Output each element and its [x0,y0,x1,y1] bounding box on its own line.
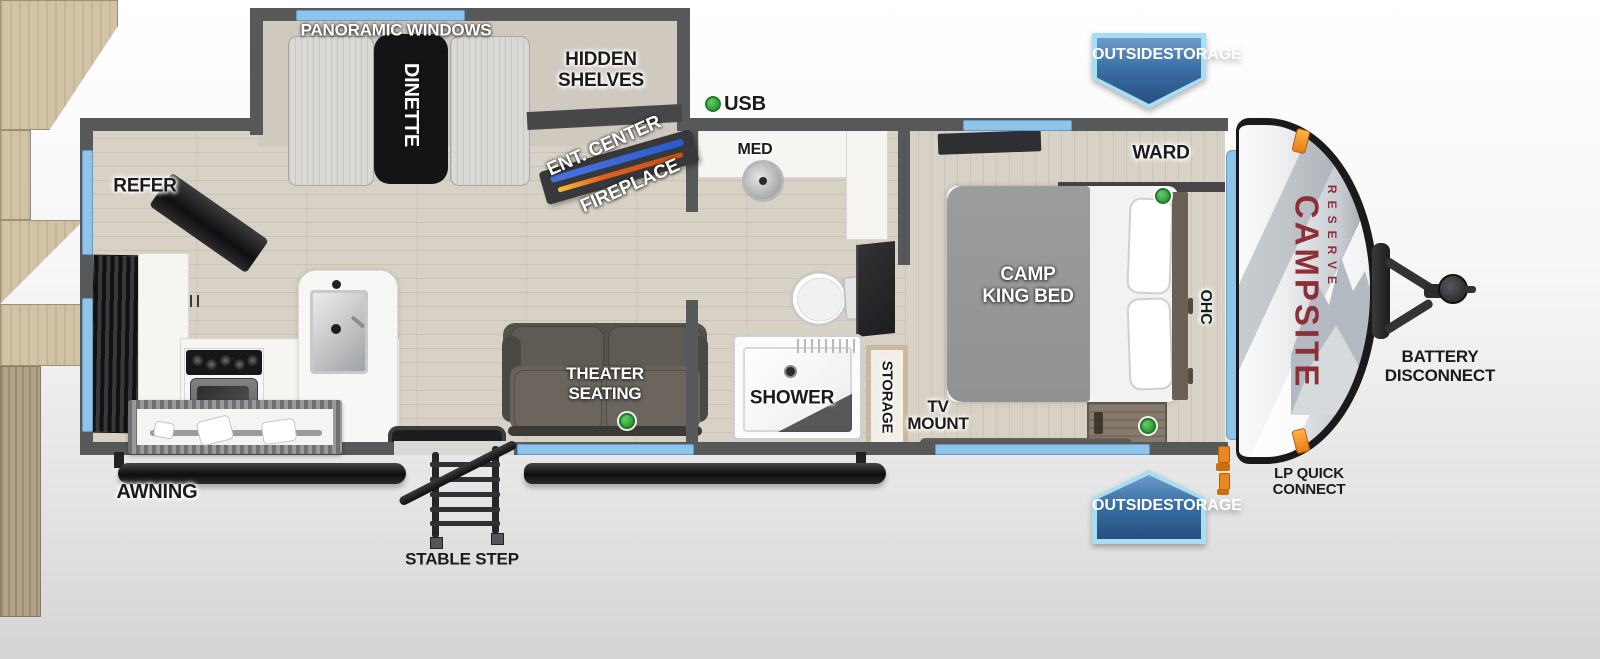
bath-bedroom-wall [898,125,910,265]
lp-hose [1216,463,1230,471]
label-panoramic-windows: PANORAMIC WINDOWS [301,22,492,39]
label-usb: USB [724,94,766,114]
burner [247,355,258,366]
burner [192,355,203,366]
nightstand-handle [1094,412,1103,434]
badge-line: STORAGE [1163,497,1242,514]
label-med: MED [738,142,773,158]
window-bottom-bedroom [935,444,1150,455]
outside-storage-badge-top: OUTSIDESTORAGE [1092,33,1206,109]
window-panoramic [296,10,465,21]
refrigerator-cabinet [0,0,118,130]
bath-vanity-return [846,126,888,240]
medicine-cabinet-wedge [0,220,84,304]
window-rear-upper [82,150,93,255]
swivel-tv-panel [856,241,895,337]
toilet [788,265,866,332]
pantry-cabinet [0,130,31,220]
burner [206,359,217,370]
label-camp-king-bed: CAMPKING BED [982,264,1073,308]
burner [234,359,245,370]
window-rear-lower [82,298,93,432]
faucet-base [332,280,341,289]
badge-line: OUTSIDE [1092,497,1163,514]
badge-line: OUTSIDE [1092,46,1163,63]
bath-sink-drain [759,177,767,185]
label-refer: REFER [113,177,176,196]
awning-tube-front [524,463,886,484]
outside-storage-badge-bottom: OUTSIDESTORAGE [1092,470,1206,544]
pantry-handle [190,295,192,307]
ohc-handle [1188,298,1193,314]
bed-pillow [1126,297,1173,390]
floorplan-diagram: CAMPSITE RESERVE OUTSIDESTORAGE OUTSIDES… [0,0,1600,659]
label-ohc: OHC [1197,290,1213,325]
hitch-handle [1464,286,1476,293]
brand-campsite: CAMPSITE [1291,195,1324,390]
label-shower: SHOWER [750,389,834,408]
label-ward: WARD [1132,144,1189,163]
window-bottom-theater [517,444,694,455]
hitch-arm-lower [1384,298,1435,334]
ohc-handle [1188,368,1193,384]
label-dinette: DINETTE [401,63,421,147]
label-lp-quick-connect: LP QUICKCONNECT [1273,466,1346,498]
label-awning: AWNING [116,482,197,502]
shower-drain [784,365,797,378]
lp-hose [1218,446,1230,463]
bed-pillow [1126,197,1173,294]
overhead-cabinet [0,366,41,617]
bedroom-soffit [938,130,1042,155]
burner [220,355,231,366]
top-wall-rear [80,118,252,131]
brand-reserve: RESERVE [1326,185,1338,291]
label-tv-mount: TVMOUNT [907,398,968,432]
label-storage: STORAGE [880,361,895,434]
dinette-bench-right [450,36,530,186]
pantry-handle [197,295,199,307]
headboard-trim [1172,192,1188,400]
usb-indicator-dot [705,96,721,112]
bath-left-wall-lower [686,300,698,442]
lp-hose [1219,473,1230,490]
usb-indicator-dot [1140,418,1156,434]
usb-indicator-dot [1155,188,1171,204]
dinette-bench-left [288,36,374,186]
window-top-bedroom [963,120,1072,131]
sink-drain [331,324,341,334]
label-hidden-shelves: HIDDENSHELVES [558,49,644,91]
label-stable-step: STABLE STEP [405,551,519,568]
outdoor-griddle-tray [128,400,342,454]
top-wall-front [677,118,1228,131]
badge-line: STORAGE [1163,46,1242,63]
usb-indicator-dot [619,413,635,429]
lp-hose [1217,489,1229,495]
label-battery-disconnect: BATTERYDISCONNECT [1385,347,1495,385]
label-theater-seating: THEATERSEATING [566,364,644,404]
